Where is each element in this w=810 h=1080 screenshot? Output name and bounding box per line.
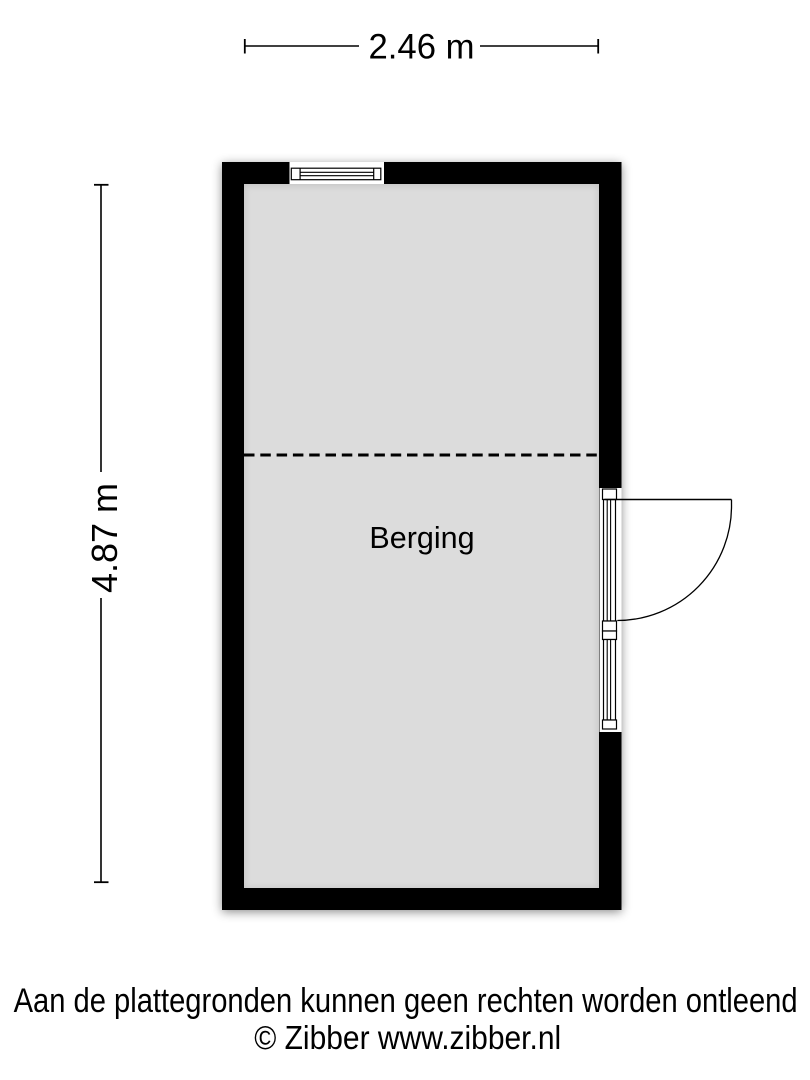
svg-text:Aan de plattegronden kunnen ge: Aan de plattegronden kunnen geen rechten… <box>14 982 798 1020</box>
svg-text:© Zibber www.zibber.nl: © Zibber www.zibber.nl <box>254 1020 561 1057</box>
svg-text:4.87 m: 4.87 m <box>84 483 125 593</box>
svg-text:2.46 m: 2.46 m <box>369 27 475 66</box>
svg-text:Berging: Berging <box>369 521 474 555</box>
